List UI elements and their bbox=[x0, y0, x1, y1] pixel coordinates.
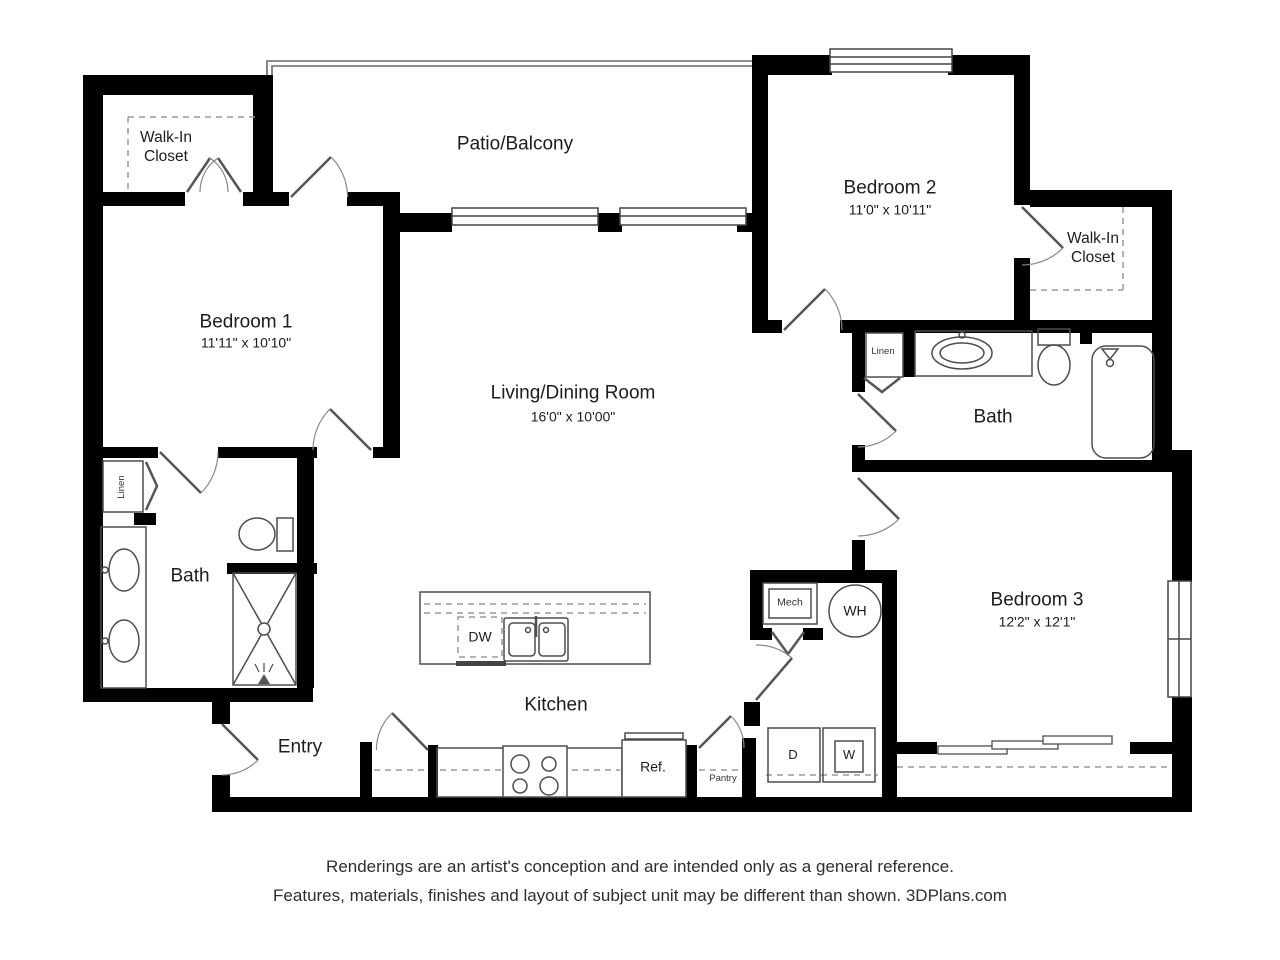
bath-left-door-leaf bbox=[160, 452, 201, 493]
walls-group bbox=[83, 55, 1192, 812]
disclaimer-line-2: Features, materials, finishes and layout… bbox=[273, 886, 1007, 906]
entry-closet-door-leaf bbox=[392, 713, 428, 750]
bath-left-fixtures bbox=[101, 461, 296, 688]
kitchen-sink bbox=[504, 616, 568, 661]
mech-box-inner bbox=[769, 589, 811, 618]
bath-right-door-leaf bbox=[858, 394, 896, 431]
dryer-box bbox=[768, 728, 820, 782]
bedroom3-window bbox=[1168, 581, 1191, 697]
living-window-right bbox=[620, 208, 746, 225]
sink-left-1 bbox=[109, 549, 139, 591]
laundry-fixtures bbox=[763, 583, 881, 782]
wic1-shelf-dashes bbox=[128, 117, 258, 192]
pantry-door-leaf bbox=[699, 716, 731, 748]
dishwasher-dashed-box bbox=[458, 617, 502, 657]
linen-left-bifold bbox=[146, 462, 157, 510]
bedroom1-door-leaf bbox=[330, 409, 371, 450]
refrigerator-box bbox=[622, 733, 686, 797]
patio-outline bbox=[267, 61, 752, 76]
floorplan-drawing bbox=[0, 0, 1280, 960]
mech-bifold-door bbox=[772, 632, 804, 654]
entry-door-leaf bbox=[222, 724, 258, 760]
bedroom2-window bbox=[830, 49, 952, 72]
windows-group bbox=[452, 49, 1191, 697]
vanity-left bbox=[101, 527, 146, 688]
wic2-door-leaf bbox=[1022, 207, 1063, 248]
water-heater-circle bbox=[829, 585, 881, 637]
disclaimer-line-1: Renderings are an artist's conception an… bbox=[326, 857, 954, 877]
living-window-left bbox=[452, 208, 598, 225]
sink-right bbox=[932, 337, 992, 369]
patio-door-leaf bbox=[291, 157, 331, 197]
bedroom3-closet-doors bbox=[938, 736, 1112, 754]
linen-left-box bbox=[103, 461, 143, 512]
floorplan-canvas: Walk-In Closet Patio/Balcony Bedroom 2 1… bbox=[0, 0, 1280, 960]
bathtub bbox=[1092, 346, 1154, 458]
stove bbox=[503, 746, 567, 797]
bedroom3-door-leaf bbox=[858, 478, 899, 519]
toilet-right bbox=[1038, 329, 1070, 385]
sink-left-2 bbox=[109, 620, 139, 662]
bedroom2-door-leaf bbox=[784, 289, 825, 330]
washer-box bbox=[823, 728, 875, 782]
linen-right-bifold bbox=[864, 378, 900, 392]
dishwasher-kick bbox=[456, 661, 506, 666]
shower bbox=[233, 573, 296, 685]
kitchen-fixtures bbox=[420, 592, 686, 797]
wic1-door-left-leaf bbox=[187, 158, 210, 192]
wic1-door-right-leaf bbox=[218, 158, 241, 192]
toilet-left bbox=[239, 518, 293, 551]
island-overhang-dashes bbox=[424, 604, 646, 613]
washer-box-inner bbox=[835, 741, 863, 772]
laundry-door-leaf bbox=[756, 658, 792, 700]
linen-right-box bbox=[866, 333, 903, 377]
wic2-shelf-dashes bbox=[1030, 207, 1123, 290]
